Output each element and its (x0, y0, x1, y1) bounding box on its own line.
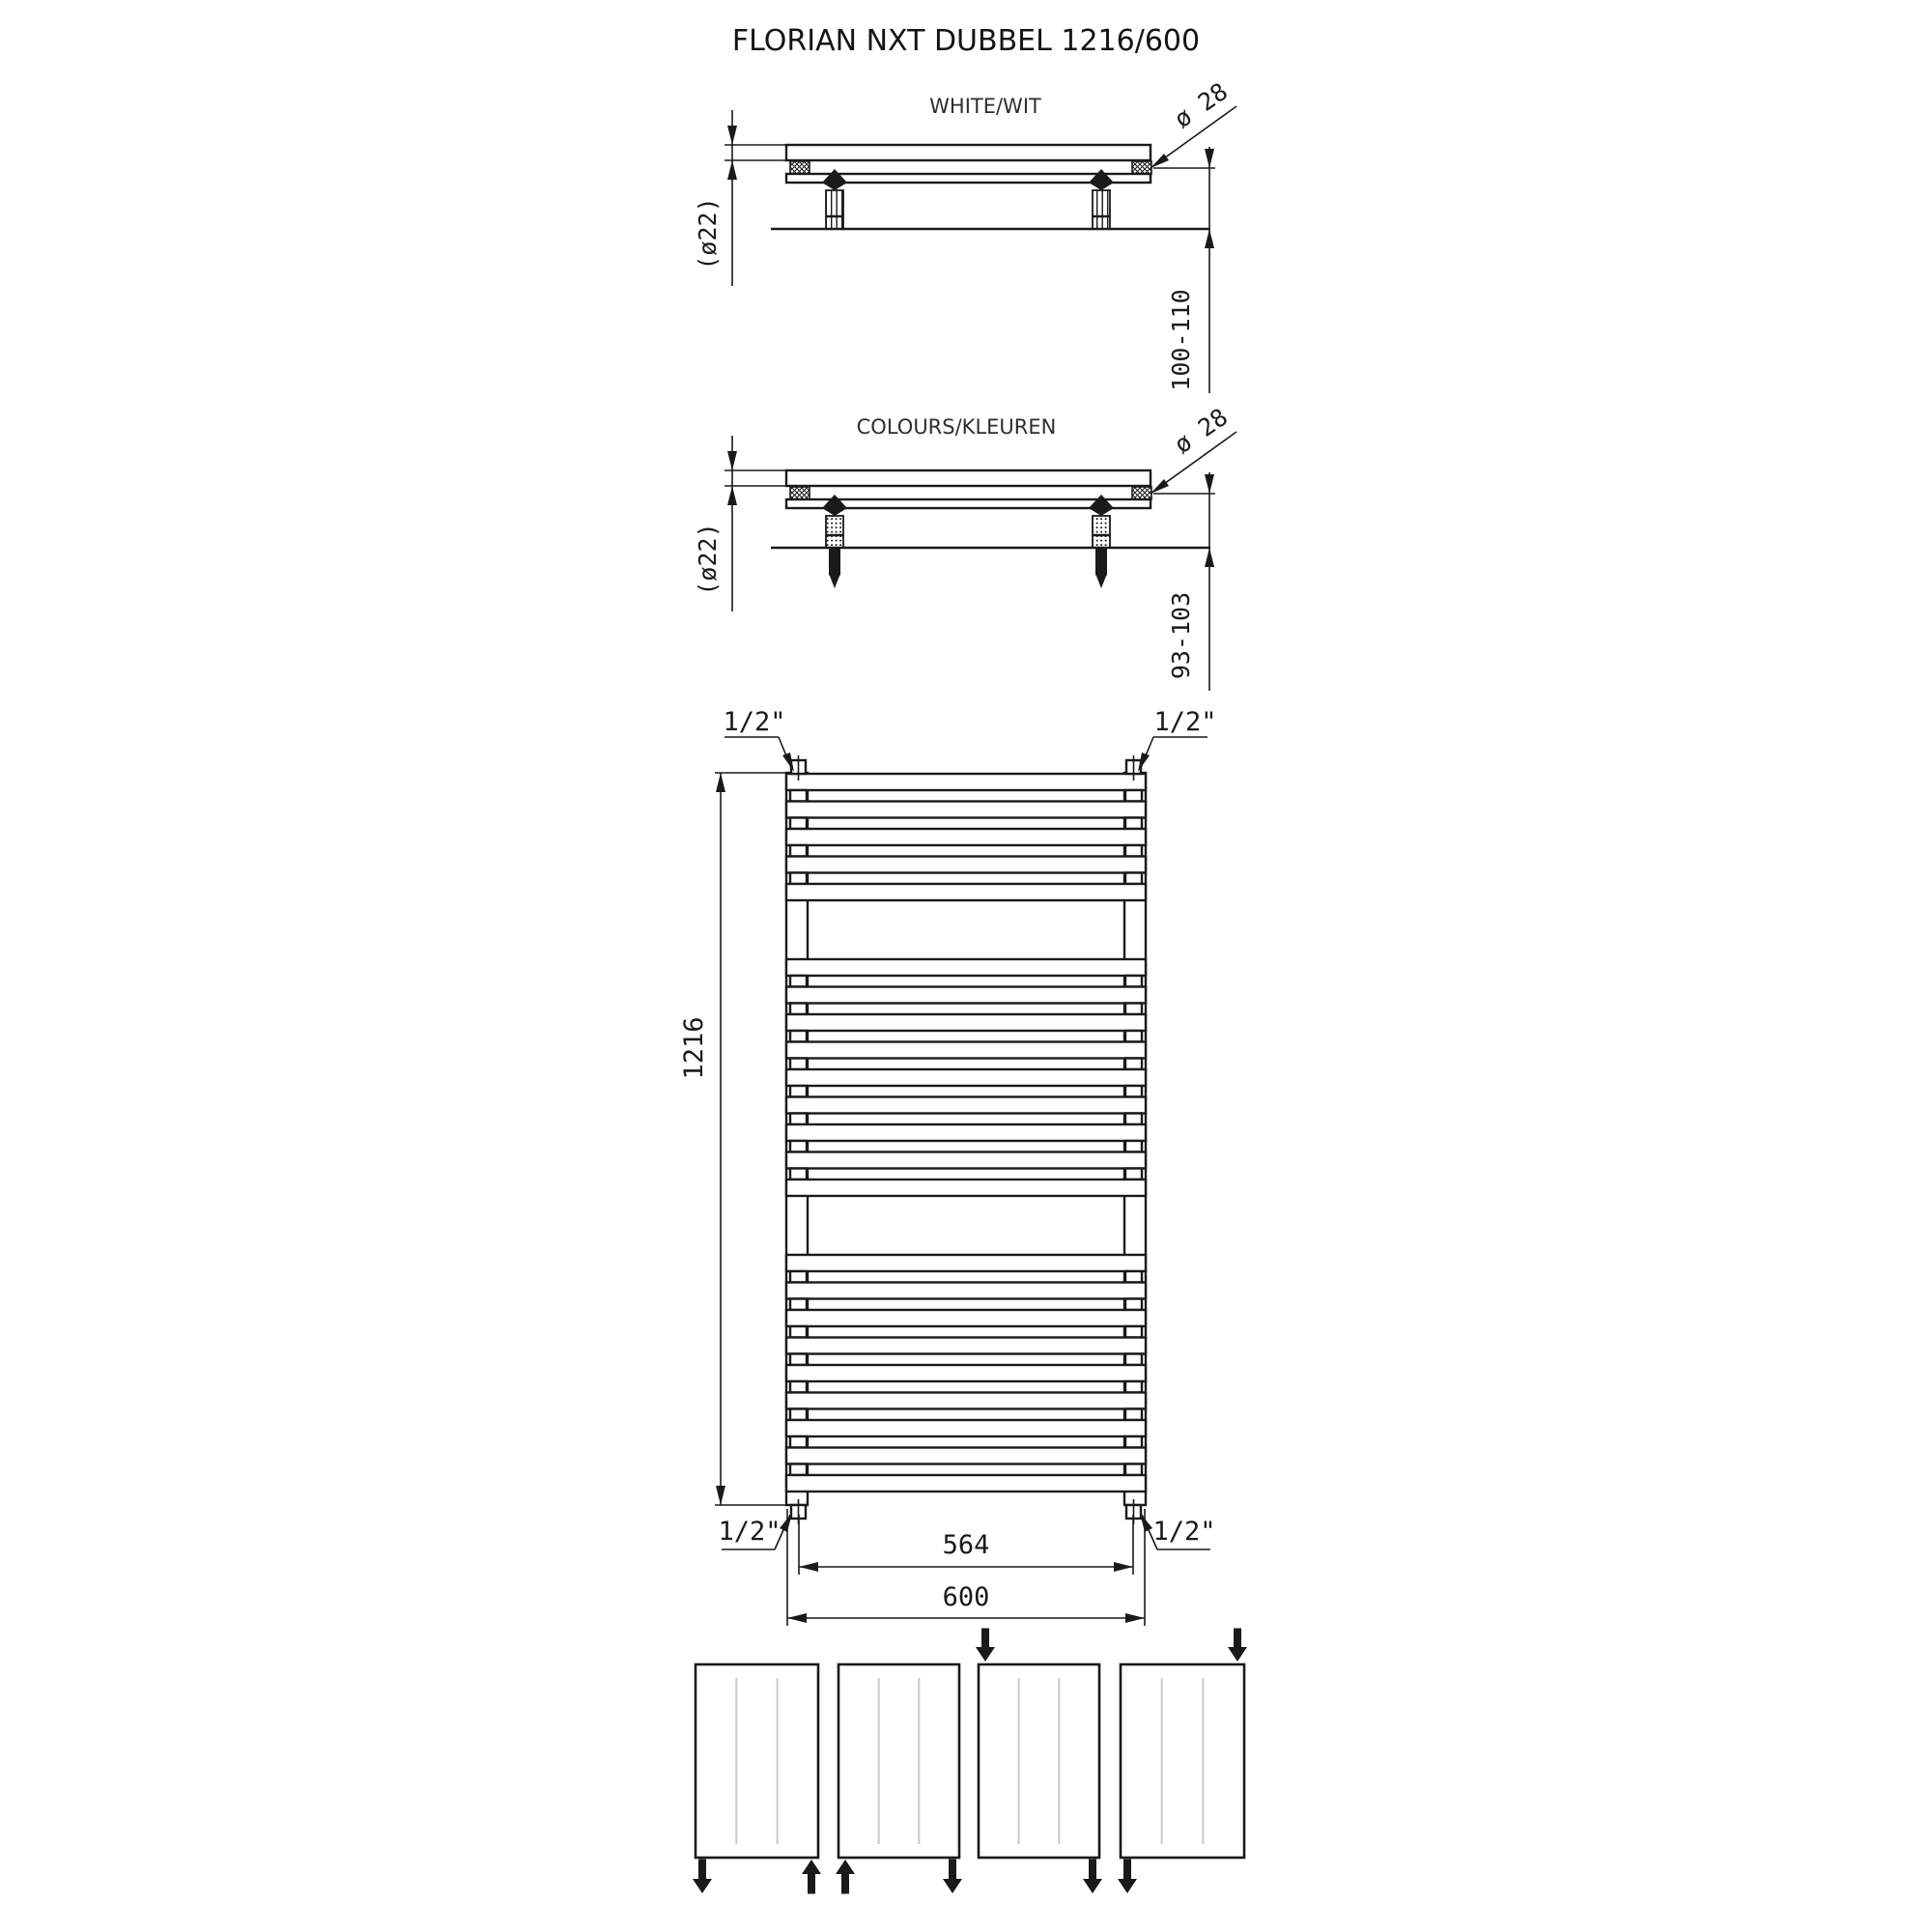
rear-tube-stub (1125, 845, 1142, 857)
drawing-page: FLORIAN NXT DUBBEL 1216/600 WHITE/WIT (0, 0, 1932, 1932)
rear-tube-stub (790, 1031, 807, 1042)
radiator-tube (786, 1179, 1146, 1196)
radiator-tube (786, 774, 1146, 790)
label-connection-bottom-right: 1/2" (1140, 1513, 1216, 1549)
radiator-tube (786, 1069, 1146, 1086)
rear-tube-stub (790, 1114, 807, 1125)
rear-tube-stub (790, 1436, 807, 1448)
technical-drawing: FLORIAN NXT DUBBEL 1216/600 WHITE/WIT (0, 0, 1932, 1932)
tube-row-profile (786, 145, 1151, 160)
rear-tube-stub (790, 1271, 807, 1283)
flow-arrow-head (802, 1860, 821, 1874)
connection-diagram (693, 1664, 821, 1893)
rear-tube-stub (1125, 1271, 1142, 1283)
page-title: FLORIAN NXT DUBBEL 1216/600 (732, 24, 1200, 58)
flow-arrow-head (943, 1879, 962, 1893)
rear-tube-stub (1125, 873, 1142, 885)
radiator-tube (786, 1152, 1146, 1169)
radiator-tube (786, 1097, 1146, 1114)
connection-diagram (976, 1629, 1102, 1893)
svg-text:(ø22): (ø22) (694, 523, 722, 595)
rear-tube-stub (790, 1409, 807, 1421)
flow-arrow-stem (842, 1874, 849, 1893)
connection-option-diagrams (693, 1629, 1247, 1893)
svg-text:1/2": 1/2" (718, 1517, 781, 1547)
rear-tube-stub (790, 1326, 807, 1338)
dim-wall-distance-white: 100-110 (1153, 147, 1215, 393)
dim-tube-diameter-colours: (ø22) (694, 436, 737, 611)
front-view: 1/2" 1/2" 1/2" 1/2" (679, 707, 1217, 1626)
rear-tube-stub (1125, 1354, 1142, 1366)
svg-text:1216: 1216 (679, 1016, 709, 1079)
rear-tube-stub (790, 976, 807, 987)
clamp-right (1132, 161, 1151, 174)
rear-tube-stub (790, 845, 807, 857)
side-view-colours-label: COLOURS/KLEUREN (857, 415, 1057, 439)
radiator-tube (786, 1475, 1146, 1492)
radiator-tube (786, 1014, 1146, 1031)
flow-arrow-stem (1090, 1860, 1096, 1879)
svg-text:600: 600 (943, 1582, 990, 1612)
flow-arrow-head (693, 1879, 712, 1893)
clamp-right (1132, 487, 1151, 499)
radiator-tube (786, 829, 1146, 845)
flow-arrow-head (1118, 1879, 1137, 1893)
svg-text:ø 28: ø 28 (1169, 77, 1233, 133)
svg-text:1/2": 1/2" (723, 707, 785, 737)
rear-tube-stub (1125, 818, 1142, 830)
radiator-tube (786, 1255, 1146, 1271)
rear-tube-stub (1125, 1436, 1142, 1448)
rear-tube-stub (1125, 1031, 1142, 1042)
rear-tube-stub (790, 1169, 807, 1180)
flow-arrow-head (836, 1860, 855, 1874)
svg-text:564: 564 (943, 1530, 990, 1560)
svg-text:100-110: 100-110 (1167, 289, 1195, 390)
svg-text:1/2": 1/2" (1153, 707, 1216, 737)
radiator-tube (786, 1310, 1146, 1326)
clamp-left (790, 487, 810, 499)
radiator-tube (786, 1338, 1146, 1354)
radiator-tube (786, 802, 1146, 818)
radiator-tube (786, 987, 1146, 1004)
radiator-tube (786, 884, 1146, 900)
label-connection-top-right: 1/2" (1138, 707, 1217, 772)
flow-arrow-stem (950, 1860, 956, 1879)
radiator-tube (786, 1448, 1146, 1464)
flow-arrow-stem (1235, 1629, 1241, 1647)
label-connection-top-left: 1/2" (723, 707, 794, 772)
svg-text:ø 28: ø 28 (1169, 403, 1233, 459)
rear-tube-stub (790, 818, 807, 830)
radiator-tube (786, 959, 1146, 976)
tube-array (786, 774, 1146, 1492)
dim-connection-spacing: 564 (799, 1515, 1133, 1575)
flow-arrow-stem (699, 1860, 706, 1879)
rear-tube-stub (1125, 1464, 1142, 1476)
dim-collector-diameter-white: ø 28 (1151, 77, 1236, 168)
radiator-tube (786, 1283, 1146, 1299)
dim-collector-diameter-colours: ø 28 (1151, 403, 1236, 494)
rear-tube-stub (790, 873, 807, 885)
flow-arrow-head (976, 1647, 995, 1662)
rear-tube-stub (790, 790, 807, 802)
connection-box (1121, 1664, 1244, 1858)
rear-tube-stub (1125, 1004, 1142, 1015)
flow-arrow-head (1083, 1879, 1102, 1893)
flow-arrow-stem (982, 1629, 989, 1647)
rear-tube-stub (1125, 1114, 1142, 1125)
rear-tube-stub (1125, 1086, 1142, 1097)
dim-tube-diameter-white: (ø22) (694, 110, 737, 286)
rear-tube-stub (1125, 1409, 1142, 1421)
rear-tube-stub (1125, 1059, 1142, 1070)
rear-tube-stub (790, 1004, 807, 1015)
rear-tube-stub (790, 1299, 807, 1311)
svg-text:1/2": 1/2" (1152, 1517, 1215, 1547)
radiator-tube (786, 1042, 1146, 1059)
rear-tube-stub (790, 1086, 807, 1097)
rear-tube-stub (790, 1464, 807, 1476)
radiator-tube (786, 1124, 1146, 1141)
dim-wall-distance-colours: 93-103 (1153, 472, 1215, 691)
wall-bracket-anchor (822, 495, 847, 588)
connection-box (979, 1664, 1099, 1858)
side-view-colours: COLOURS/KLEUREN (ø22) (694, 403, 1236, 691)
radiator-tube (786, 1393, 1146, 1409)
flow-arrow-head (1228, 1647, 1247, 1662)
wall-bracket-anchor (1089, 495, 1114, 588)
rear-tube-stub (790, 1354, 807, 1366)
rear-tube-stub (1125, 1326, 1142, 1338)
side-view-white-label: WHITE/WIT (929, 95, 1041, 118)
rear-tube-stub (1125, 976, 1142, 987)
rear-tube-stub (790, 1059, 807, 1070)
tube-row-profile (786, 470, 1151, 486)
rear-tube-stub (1125, 1381, 1142, 1393)
label-connection-bottom-left: 1/2" (718, 1513, 792, 1549)
rear-tube-stub (790, 1381, 807, 1393)
flow-arrow-stem (809, 1874, 815, 1893)
rear-tube-stub (1125, 1299, 1142, 1311)
connection-box (838, 1664, 959, 1858)
side-view-white: WHITE/WIT (ø22) (694, 77, 1236, 393)
rear-tube-stub (790, 1141, 807, 1152)
flow-arrow-stem (1124, 1860, 1131, 1879)
clamp-left (790, 161, 810, 174)
radiator-tube (786, 1420, 1146, 1436)
radiator-tube (786, 857, 1146, 873)
svg-text:(ø22): (ø22) (694, 197, 722, 270)
rear-tube-stub (1125, 790, 1142, 802)
rear-tube-stub (1125, 1169, 1142, 1180)
connection-diagram (836, 1664, 962, 1893)
connection-box (696, 1664, 818, 1858)
radiator-tube (786, 1365, 1146, 1381)
connection-diagram (1118, 1629, 1247, 1893)
rear-tube-stub (1125, 1141, 1142, 1152)
dim-height: 1216 (679, 773, 786, 1505)
svg-text:93-103: 93-103 (1167, 592, 1195, 679)
